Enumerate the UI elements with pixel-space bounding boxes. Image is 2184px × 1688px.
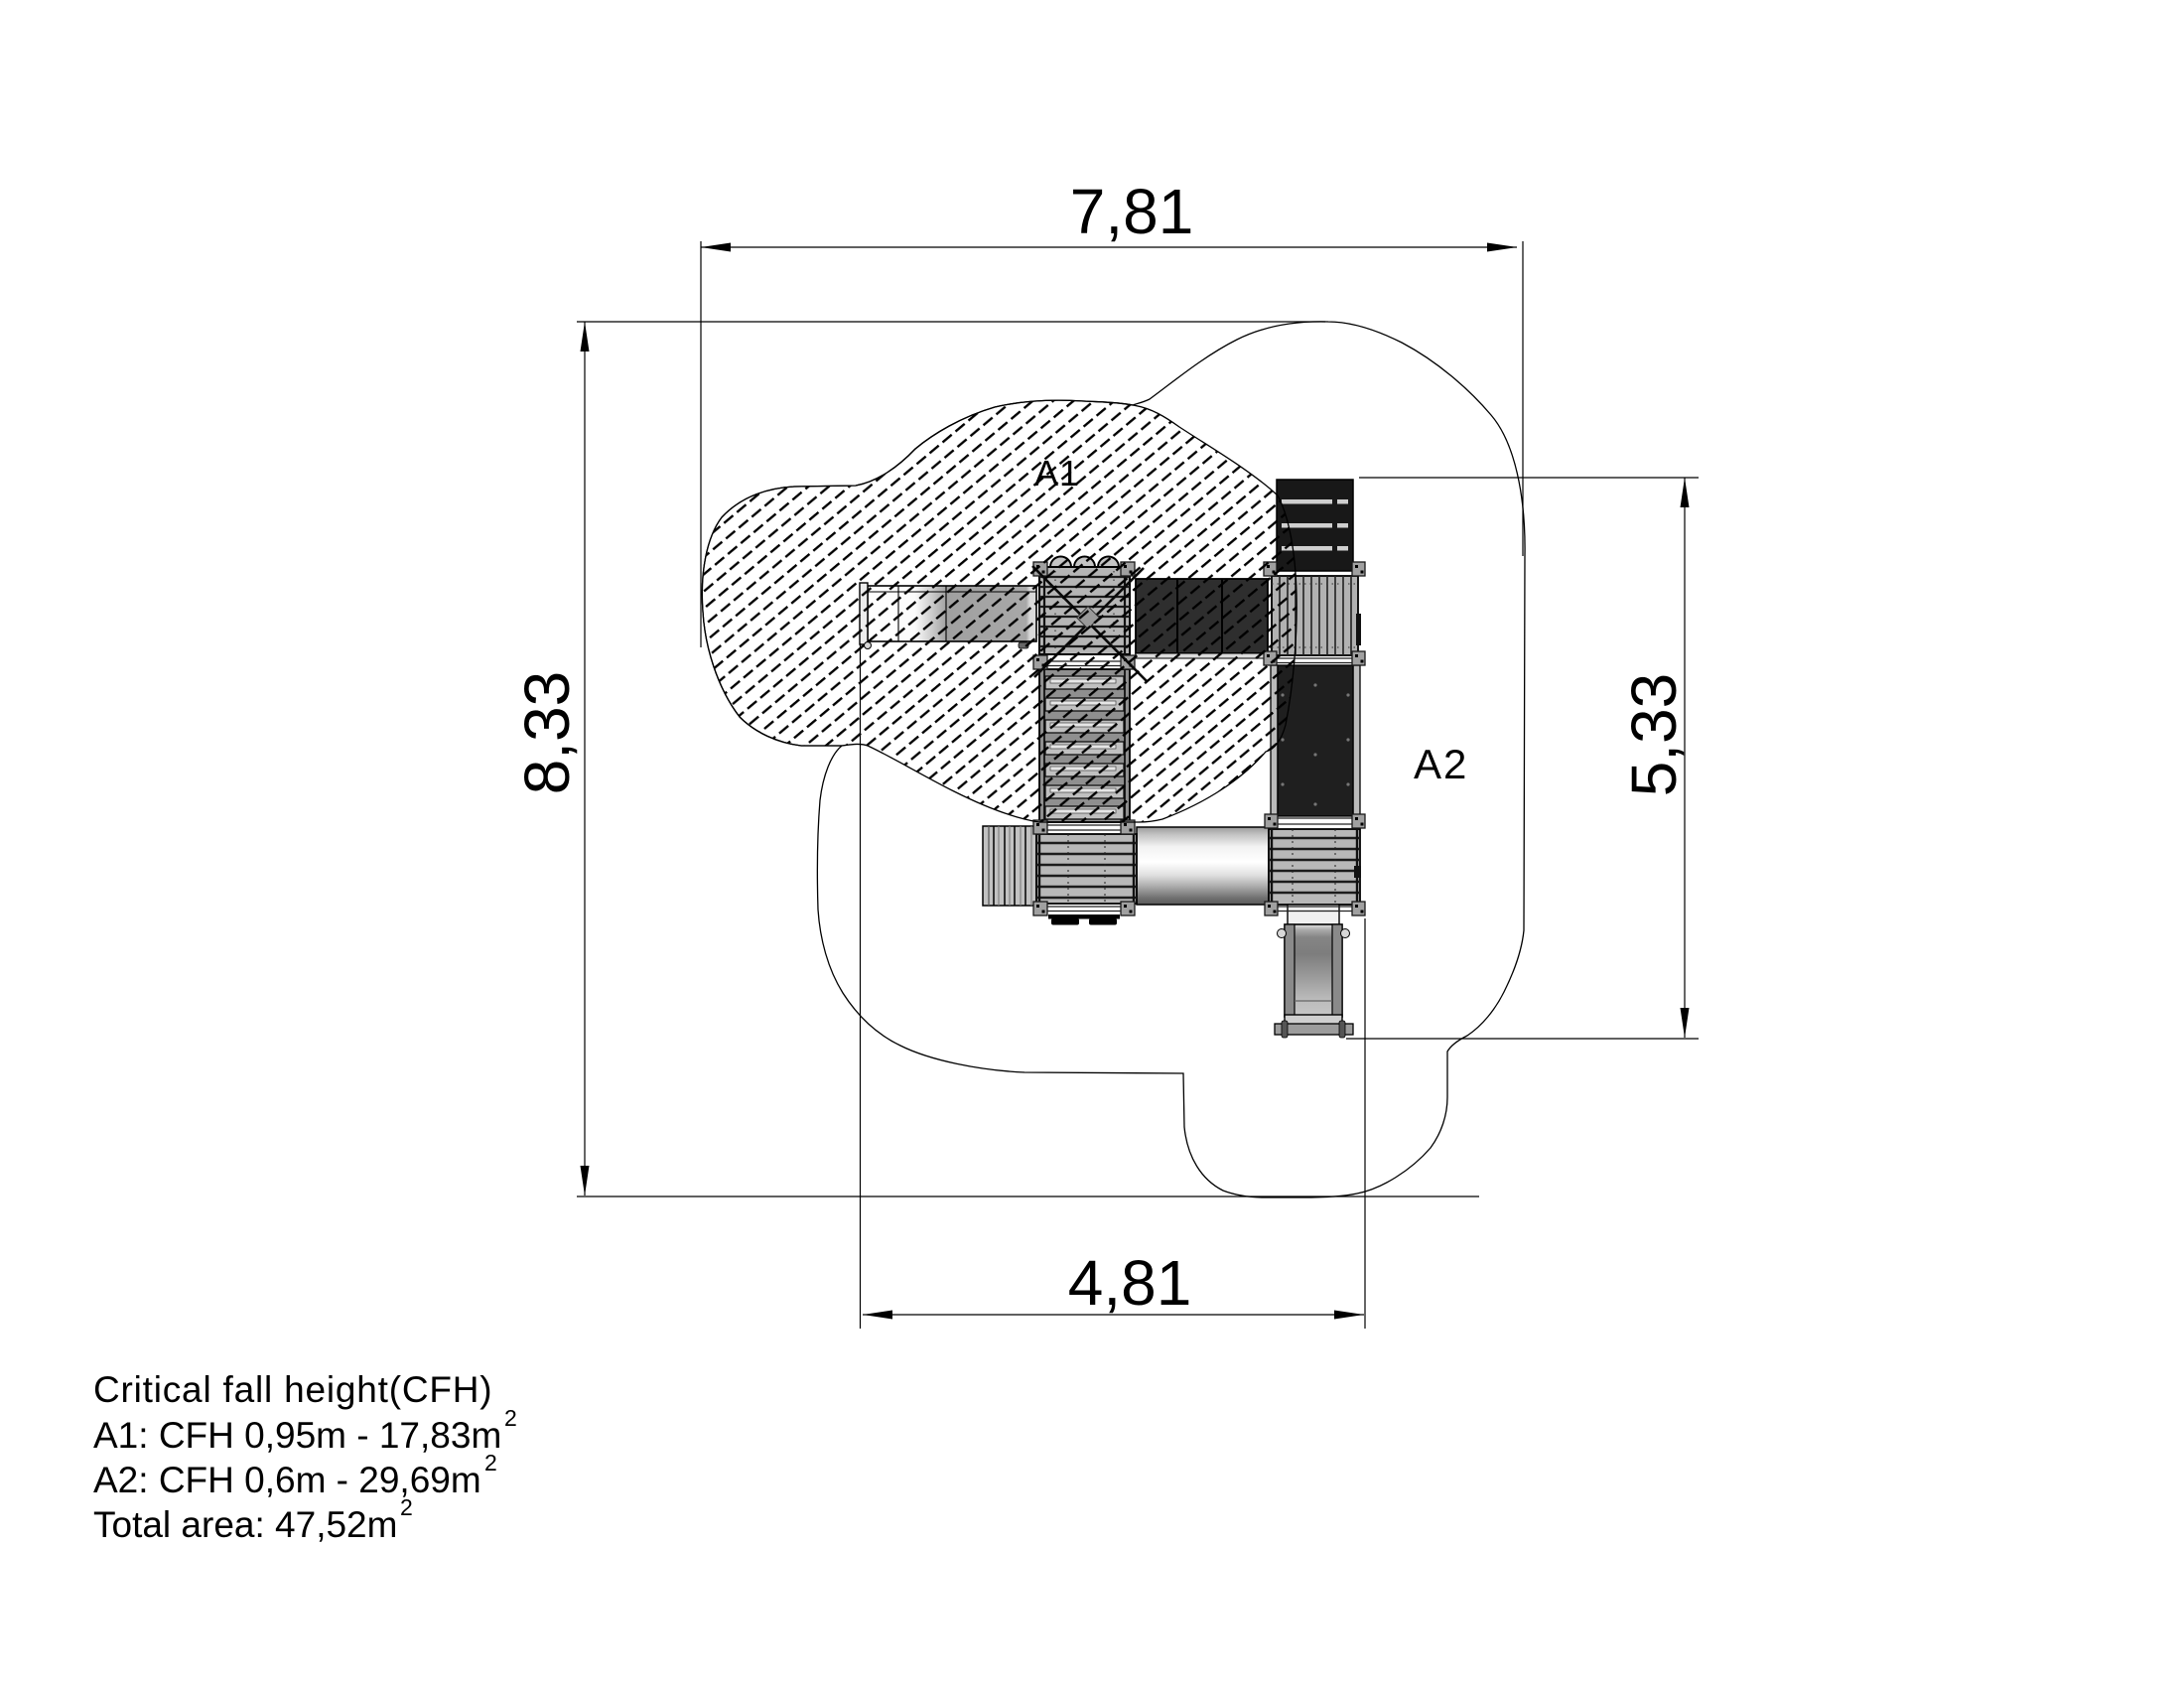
svg-text:Critical fall height(CFH): Critical fall height(CFH) [93,1369,492,1410]
svg-text:8,33: 8,33 [511,671,583,795]
svg-text:A1: CFH 0,95m - 17,83m: A1: CFH 0,95m - 17,83m [93,1415,501,1456]
svg-text:7,81: 7,81 [1070,176,1194,247]
svg-text:A2: CFH 0,6m - 29,69m: A2: CFH 0,6m - 29,69m [93,1460,481,1500]
svg-text:A1: A1 [1034,453,1080,493]
svg-text:2: 2 [484,1450,497,1476]
svg-text:2: 2 [504,1405,517,1431]
svg-text:2: 2 [400,1494,413,1520]
svg-text:5,33: 5,33 [1618,673,1690,797]
svg-text:4,81: 4,81 [1068,1247,1192,1319]
svg-text:Total area: 47,52m: Total area: 47,52m [93,1504,397,1545]
svg-text:A2: A2 [1414,741,1468,787]
